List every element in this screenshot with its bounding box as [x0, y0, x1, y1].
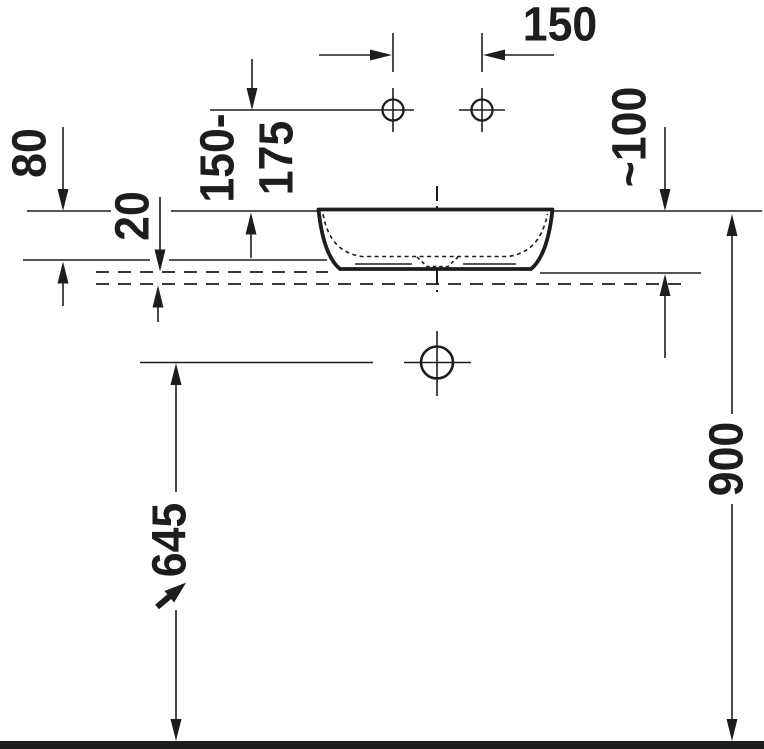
counter-panel-lines	[96, 272, 701, 284]
dimension-faucet-spacing	[319, 33, 554, 72]
dim-label-20: 20	[105, 191, 164, 241]
dim-label-150-175: 150- 175	[189, 113, 306, 202]
drain-outlet-icon	[140, 331, 471, 396]
adjustable-height-arrow-icon	[152, 577, 191, 613]
dim-label-80: 80	[2, 128, 61, 178]
dim-label-900: 900	[699, 422, 758, 496]
technical-drawing: 150 80 20 150- 175 ~100 645 900	[0, 0, 764, 749]
dim-label-150: 150	[523, 0, 597, 55]
dimension-basin-height	[660, 127, 671, 358]
floor-line	[0, 741, 764, 749]
dim-label-645: 645	[142, 503, 201, 577]
dim-label-100: ~100	[602, 87, 661, 188]
basin-outline	[319, 186, 553, 292]
